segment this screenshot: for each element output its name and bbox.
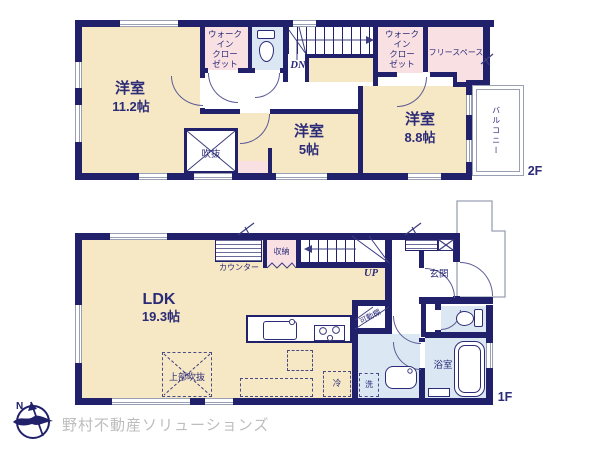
floor-tag-1f: 1F — [490, 390, 520, 405]
wic-line: ウォーク — [379, 29, 425, 39]
bathroom-label: 浴室 — [428, 360, 458, 371]
walkin-closet2-label: ウォーク イン クロー ゼット — [379, 29, 425, 69]
room-label-ldk: LDK — [109, 290, 209, 309]
balcony-label: バルコニー — [491, 100, 501, 162]
void-label: 吹抜 — [186, 149, 236, 160]
brand-logo-text: 野村不動産ソリューションズ — [62, 417, 322, 435]
room-size-bedroom1: 11.2帖 — [81, 99, 181, 115]
room-label-bedroom2: 洋室 — [269, 123, 349, 141]
svg-text:N: N — [16, 401, 23, 412]
compass-north-icon: N — [10, 396, 56, 444]
wic-line: ウォーク — [202, 29, 248, 39]
wic-line: ゼット — [202, 59, 248, 69]
stairs-down-label: DN — [285, 60, 311, 73]
washer-label: 洗 — [359, 380, 379, 390]
wic-line: ゼット — [379, 59, 425, 69]
wic-line: イン — [202, 39, 248, 49]
open-above-label: 上部吹抜 — [162, 372, 212, 383]
room-size-bedroom2: 5帖 — [269, 142, 349, 158]
counter-label: カウンター — [214, 263, 264, 273]
wic-line: クロー — [202, 49, 248, 59]
wic-line: イン — [379, 39, 425, 49]
stairs-up-label: UP — [358, 268, 384, 281]
room-label-bedroom3: 洋室 — [380, 111, 460, 129]
room-label-bedroom1: 洋室 — [80, 80, 180, 98]
fridge-label: 冷 — [323, 378, 351, 388]
walkin-closet1-label: ウォーク イン クロー ゼット — [202, 29, 248, 69]
room-size-ldk: 19.3帖 — [111, 309, 211, 325]
wic-line: クロー — [379, 49, 425, 59]
stairs-down-arrowhead — [366, 36, 374, 44]
floor-tag-2f: 2F — [520, 164, 550, 179]
free-space-label: フリースペース — [426, 48, 486, 58]
room-size-bedroom3: 8.8帖 — [380, 130, 460, 146]
stairs-up-arrowhead — [304, 245, 312, 253]
entrance-label: 玄関 — [424, 269, 454, 280]
floorplan-canvas: 洋室 11.2帖 洋室 5帖 洋室 8.8帖 ウォーク イン クロー ゼット ウ… — [0, 0, 600, 450]
storage-label: 収納 — [266, 247, 297, 257]
